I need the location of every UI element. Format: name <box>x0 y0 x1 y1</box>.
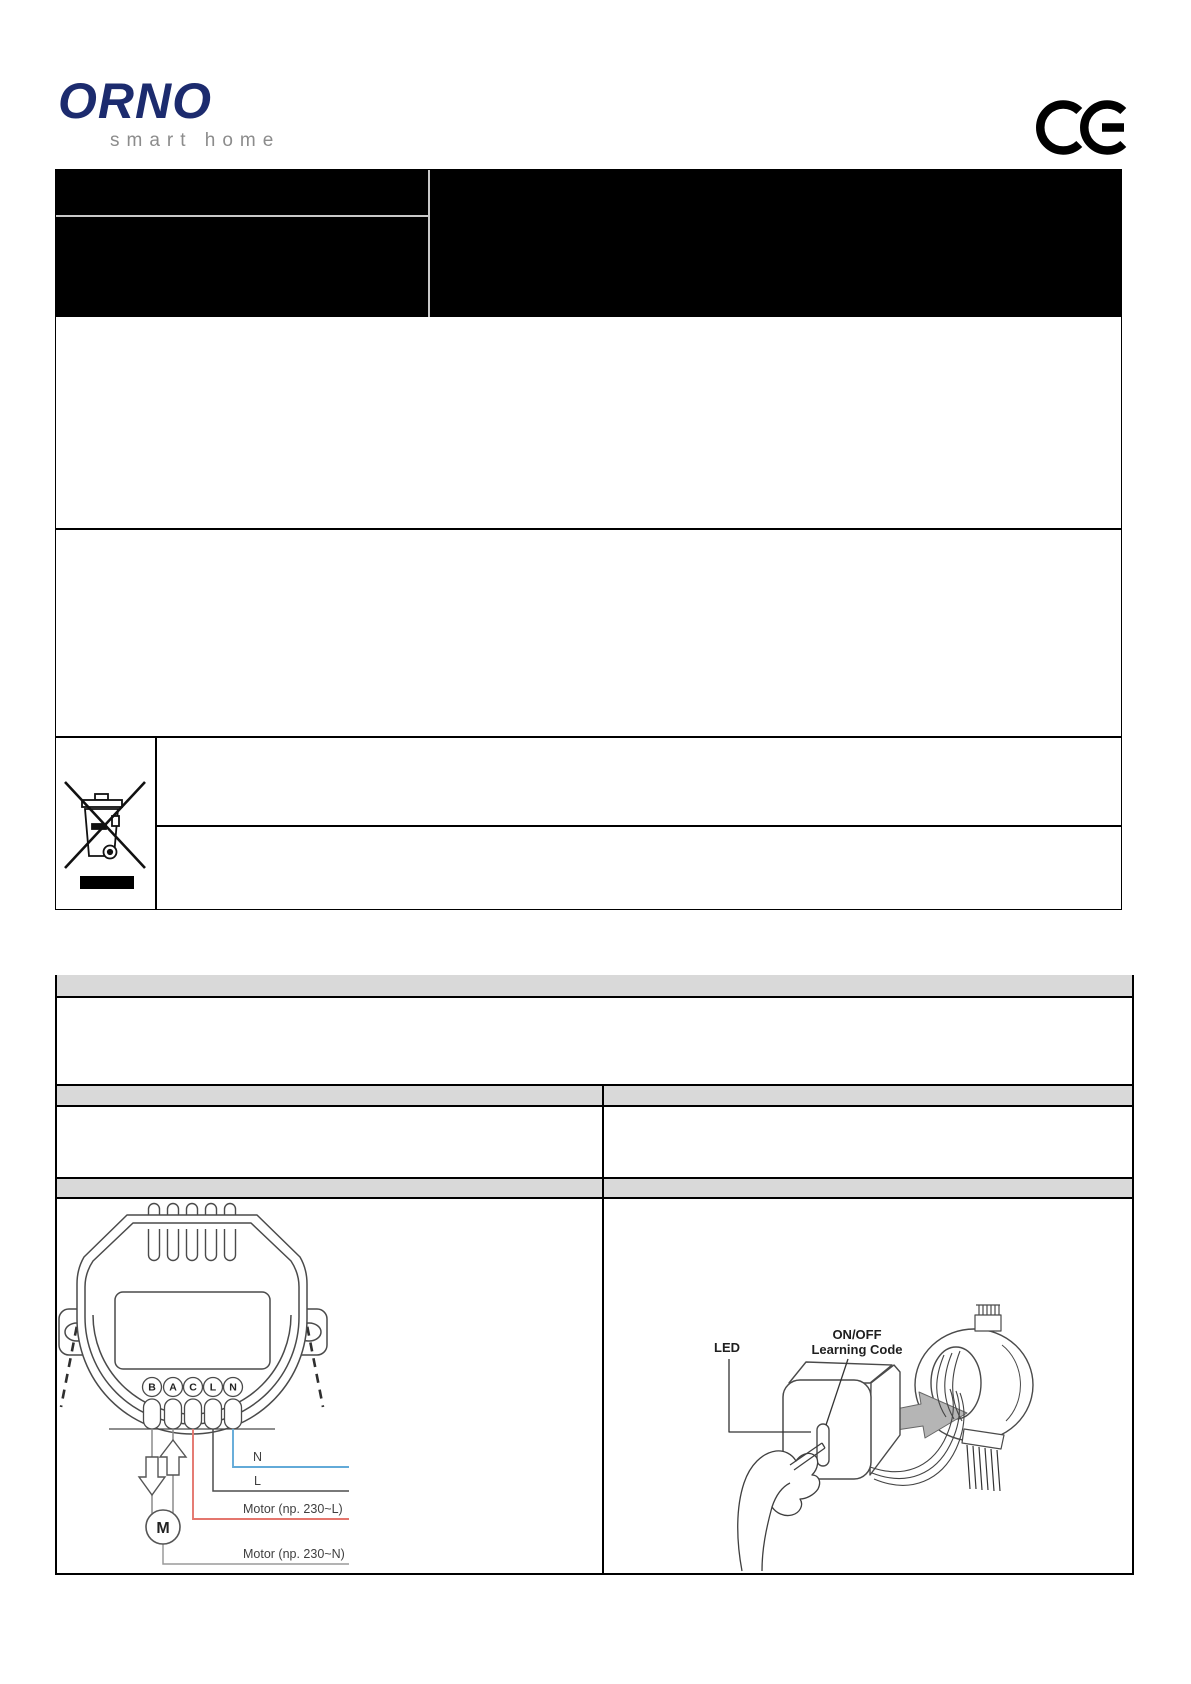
table-row-description <box>57 998 1132 1084</box>
arrow-up-icon <box>160 1440 186 1475</box>
terminal-letter-l: L <box>210 1382 217 1394</box>
info-box-2 <box>56 530 1121 736</box>
onoff-label-line2: Learning Code <box>811 1342 902 1357</box>
wire-label-motor-l: Motor (np. 230~L) <box>243 1502 343 1516</box>
terminal-letter-n: N <box>229 1382 237 1394</box>
wiring-diagram: B A C L N M N L Motor (np. 230~L) Motor … <box>57 1199 602 1575</box>
terminal-letter-b: B <box>148 1382 156 1394</box>
title-bar <box>56 170 1121 317</box>
display-window <box>115 1292 270 1369</box>
hand-illustration <box>738 1443 825 1571</box>
weee-bar <box>80 876 134 889</box>
wire-label-n: N <box>253 1450 262 1464</box>
ce-mark-icon <box>1036 98 1132 158</box>
table-header-row-2 <box>57 1084 1132 1107</box>
top-info-table <box>55 169 1122 910</box>
orno-logo: ORNO smart home <box>58 72 378 162</box>
title-cell-product-name <box>430 170 1121 317</box>
table-row-specs <box>57 1107 1132 1177</box>
weee-bin-icon <box>62 780 150 896</box>
title-cell-type <box>56 217 428 317</box>
housing-pins <box>962 1429 1004 1491</box>
brand-text: ORNO <box>58 72 212 130</box>
wire-label-l: L <box>254 1474 261 1488</box>
arrow-down-icon <box>139 1457 165 1495</box>
motor-symbol: M <box>156 1520 169 1537</box>
wire-label-motor-n: Motor (np. 230~N) <box>243 1547 345 1561</box>
led-label: LED <box>714 1340 740 1355</box>
wire-n <box>233 1429 349 1467</box>
manual-page: { "header": { "brand": "ORNO", "tagline"… <box>0 0 1191 1684</box>
product-detail-table: B A C L N M N L Motor (np. 230~L) Motor … <box>55 975 1134 1575</box>
terminal-letter-a: A <box>169 1382 177 1394</box>
onoff-label-line1: ON/OFF <box>832 1327 881 1342</box>
table-header-row-1 <box>57 975 1132 998</box>
weee-text-cell-bottom <box>157 827 1121 910</box>
pairing-diagram: LED ON/OFF Learning Code <box>604 1199 1134 1575</box>
housing-top-connector <box>975 1305 1001 1331</box>
table-header-row-3 <box>57 1177 1132 1199</box>
brand-tagline: smart home <box>110 130 280 152</box>
terminal-letter-c: C <box>189 1382 197 1394</box>
info-box-1 <box>56 317 1121 528</box>
title-cell-model <box>56 170 428 215</box>
weee-text-cell-top <box>157 738 1121 825</box>
weee-row <box>56 738 1121 910</box>
